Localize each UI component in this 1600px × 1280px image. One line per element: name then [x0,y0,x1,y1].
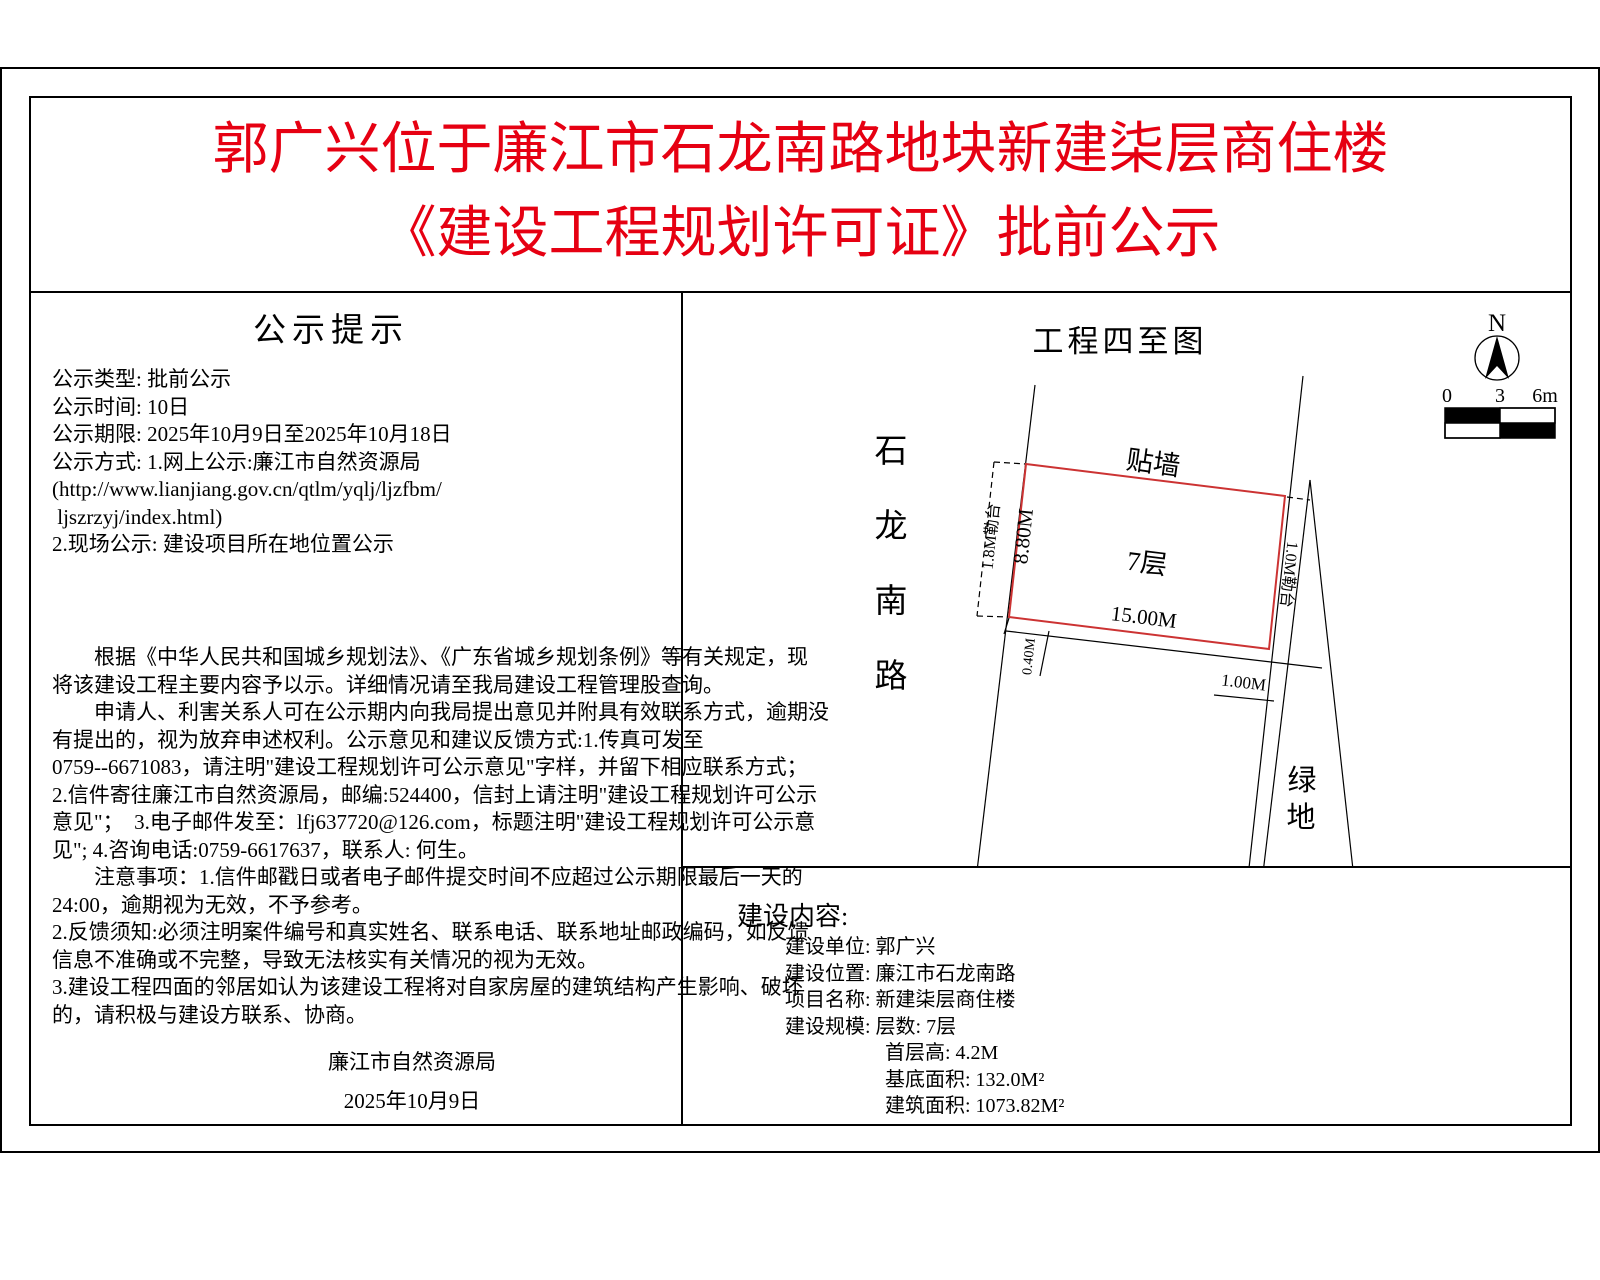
right-panel-divider [681,866,1572,868]
notice-body-line: 2.信件寄往廉江市自然资源局，邮编:524400，信封上请注明"建设工程规划许可… [52,782,667,810]
scale-label-6m: 6m [1532,385,1558,407]
notice-info-list: 公示类型: 批前公示 公示时间: 10日 公示期限: 2025年10月9日至20… [52,366,452,559]
offset-tick [1040,631,1049,676]
setback-dashed-east [1287,497,1310,500]
west-dimension-label: 8.80M [1008,507,1038,565]
notice-info-line: 2.现场公示: 建设项目所在地位置公示 [52,531,452,559]
road-name-char: 石 [875,434,908,470]
content-item: 首层高: 4.2M [785,1040,1064,1067]
west-strip-label: 1.8M勒台 [979,503,1004,571]
scale-bar-cell [1445,423,1500,438]
scale-bar-cell [1500,408,1555,423]
notice-info-line: 公示时间: 10日 [52,394,452,422]
road-edge-line-west [972,385,1035,866]
notice-info-line: 公示类型: 批前公示 [52,366,452,394]
notice-body-line: 注意事项：1.信件邮戳日或者电子邮件提交时间不应超过公示期限最后一天的 [52,864,667,892]
south-dimension-label: 15.00M [1110,601,1179,633]
notice-body-line: 0759--6671083，请注明"建设工程规划许可公示意见"字样，并留下相应联… [52,754,667,782]
setback-dashed-top [994,462,1026,464]
site-plan-map: 工程四至图 N 0 3 6m 石 龙 南 路 [682,292,1571,866]
content-item: 建设单位: 郭广兴 [785,934,1064,961]
outer-frame-left [0,67,2,1153]
issuing-authority: 廉江市自然资源局 [247,1046,577,1076]
gap-dimension-line [1214,695,1274,701]
content-item: 项目名称: 新建柒层商住楼 [785,987,1064,1014]
road-name-char: 南 [875,583,908,620]
content-panel-title: 建设内容: [737,896,848,933]
east-strip-label: 1.0M勒台 [1277,541,1302,609]
outer-frame-top [0,67,1600,69]
notice-body-line: 根据《中华人民共和国城乡规划法》、《广东省城乡规划条例》等有关规定，现 [52,644,667,672]
setback-dashed-bottom [977,616,1009,617]
document-title-line1: 郭广兴位于廉江市石龙南路地块新建柒层商住楼 [31,108,1570,192]
notice-body-line: 申请人、利害关系人可在公示期内向我局提出意见并附具有效联系方式，逾期没 [52,699,667,727]
notice-body-line: 信息不准确或不完整，导致无法核实有关情况的视为无效。 [52,947,667,975]
scale-bar-cell [1445,408,1500,423]
compass-arrow-icon [1485,336,1509,379]
green-strip-line-east [1310,480,1358,866]
road-name-char: 龙 [875,508,908,545]
signature-block: 廉江市自然资源局 2025年10月9日 [247,1046,577,1115]
content-item: 建设位置: 廉江市石龙南路 [785,961,1064,988]
content-item-list: 建设单位: 郭广兴 建设位置: 廉江市石龙南路 项目名称: 新建柒层商住楼 建设… [785,934,1064,1120]
green-belt-char: 绿 [1287,764,1316,797]
scale-bar-cell [1500,423,1555,438]
content-item: 建设规模: 层数: 7层 [785,1014,1064,1041]
notice-panel-title: 公示提示 [253,303,409,351]
scale-label-0: 0 [1442,385,1452,407]
notice-body-line: 意见"； 3.电子邮件发至：lfj637720@126.com，标题注明"建设工… [52,809,667,837]
offset-dimension-label: 0.40M [1020,637,1039,676]
notice-info-line: (http://www.lianjiang.gov.cn/qtlm/yqlj/l… [52,476,452,504]
road-name-char: 路 [875,658,908,695]
outer-frame-bottom [0,1151,1600,1153]
compass-n-label: N [1488,310,1506,337]
green-belt-char: 地 [1286,801,1315,834]
floors-label: 7层 [1125,546,1169,581]
notice-body-line: 见"; 4.咨询电话:0759-6617637，联系人: 何生。 [52,837,667,865]
wall-attach-label: 贴墙 [1124,444,1182,481]
notice-body-line: 2.反馈须知:必须注明案件编号和真实姓名、联系电话、联系地址邮政编码，如反馈 [52,919,667,947]
notice-body-line: 24:00，逾期视为无效，不予参考。 [52,892,667,920]
notice-body-line: 将该建设工程主要内容予以示。详细情况请至我局建设工程管理股查询。 [52,672,667,700]
issue-date: 2025年10月9日 [247,1085,577,1115]
notice-body-line: 3.建设工程四面的邻居如认为该建设工程将对自家房屋的建筑结构产生影响、破坏 [52,974,667,1002]
notice-body: 根据《中华人民共和国城乡规划法》、《广东省城乡规划条例》等有关规定，现 将该建设… [52,644,667,1029]
notice-body-line: 的，请积极与建设方联系、协商。 [52,1002,667,1030]
document-title: 郭广兴位于廉江市石龙南路地块新建柒层商住楼 《建设工程规划许可证》批前公示 [31,100,1570,290]
public-notice-document: 郭广兴位于廉江市石龙南路地块新建柒层商住楼 《建设工程规划许可证》批前公示 公示… [0,0,1600,1280]
map-title: 工程四至图 [1033,324,1208,359]
notice-body-line: 有提出的，视为放弃申述权利。公示意见和建议反馈方式:1.传真可发至 [52,727,667,755]
notice-info-line: ljszrzyj/index.html) [52,504,452,532]
document-title-line2: 《建设工程规划许可证》批前公示 [31,192,1570,276]
content-item: 建筑面积: 1073.82M² [785,1093,1064,1120]
scale-label-3: 3 [1495,385,1505,407]
notice-info-line: 公示方式: 1.网上公示:廉江市自然资源局 [52,449,452,477]
gap-dimension-label: 1.00M [1220,670,1267,694]
content-item: 基底面积: 132.0M² [785,1067,1064,1094]
notice-info-line: 公示期限: 2025年10月9日至2025年10月18日 [52,421,452,449]
